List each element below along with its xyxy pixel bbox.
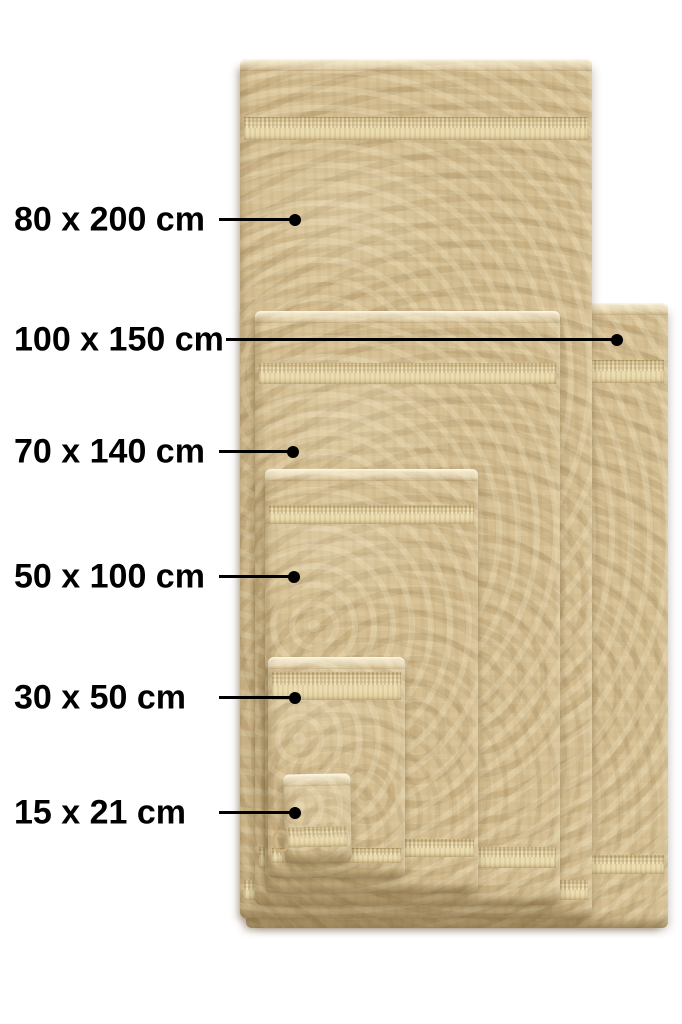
size-label: 70 x 140 cm (14, 433, 205, 472)
towel-woven-border (269, 505, 474, 524)
callout-80x200: 80 x 200 cm (0, 200, 682, 240)
callout-dot (289, 692, 301, 704)
callout-line (219, 696, 295, 699)
callout-dot (289, 807, 301, 819)
towel-woven-border (244, 117, 588, 140)
size-label: 100 x 150 cm (14, 321, 224, 360)
callout-line (219, 811, 295, 814)
callout-dot (287, 446, 299, 458)
callout-line (219, 575, 294, 578)
size-label: 15 x 21 cm (14, 794, 186, 833)
callout-line (219, 450, 293, 453)
callout-30x50: 30 x 50 cm (0, 678, 682, 718)
callout-line (226, 338, 617, 341)
callout-line (219, 218, 295, 221)
size-label: 80 x 200 cm (14, 201, 205, 240)
towel-woven-border (259, 363, 556, 384)
callout-70x140: 70 x 140 cm (0, 432, 682, 472)
towel-size-comparison-diagram: 80 x 200 cm 100 x 150 cm 70 x 140 cm 50 … (0, 0, 682, 1024)
callout-15x21: 15 x 21 cm (0, 793, 682, 833)
callout-100x150: 100 x 150 cm (0, 320, 682, 360)
size-label: 50 x 100 cm (14, 558, 205, 597)
callout-dot (288, 571, 300, 583)
callout-50x100: 50 x 100 cm (0, 557, 682, 597)
callout-dot (289, 214, 301, 226)
size-label: 30 x 50 cm (14, 679, 186, 718)
callout-dot (611, 334, 623, 346)
